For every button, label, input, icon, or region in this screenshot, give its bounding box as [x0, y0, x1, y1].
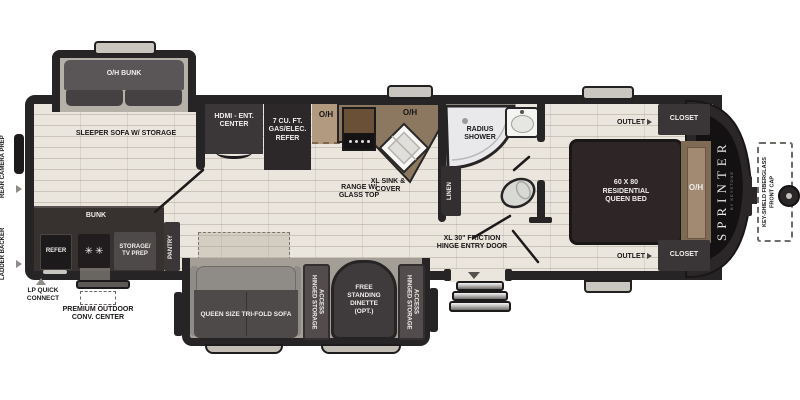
radius-shower-label: RADIUS SHOWER: [452, 126, 508, 143]
outlet-arrow-icon: [647, 253, 652, 259]
bunk-sofa-seat: [66, 90, 123, 106]
slide-travel-dashed-zone: [198, 232, 290, 260]
brand-sub-label: BY KEYSTONE: [729, 168, 737, 212]
closet-top: CLOSET: [658, 104, 710, 135]
ladder-backer-arrow: [16, 260, 22, 268]
pantry: PANTRY: [164, 222, 180, 271]
outlet-arrow-icon: [647, 119, 652, 125]
hinged-storage-right: HINGED STORAGE ACCESS: [398, 264, 425, 340]
range: [342, 107, 376, 151]
entry-step: [456, 281, 504, 291]
storage-tv-prep-box: STORAGE/ TV PREP: [114, 232, 156, 270]
entry-wall-cap: [444, 269, 451, 281]
entry-step: [449, 301, 511, 312]
roof-vent: [94, 41, 156, 55]
oh-bunk-label: O/H BUNK: [64, 70, 184, 78]
sleeper-sofa-label: SLEEPER SOFA W/ STORAGE: [52, 130, 200, 138]
tv-arc: [216, 146, 252, 159]
bath-sink-basin: [511, 115, 534, 133]
closet-bottom-label: CLOSET: [670, 251, 698, 259]
gas-elec-refer-label: 7 CU. FT. GAS/ELEC. REFER: [267, 118, 308, 143]
hitch-coupler: [778, 185, 800, 207]
linen-cabinet: LINEN: [441, 166, 461, 216]
bath-wall-tee: [529, 217, 552, 223]
rear-camera-prep-label: REAR CAMERA PREP: [0, 133, 14, 201]
sink-label: XL SINK & COVER: [368, 178, 408, 195]
stove-burner-icon: ✳: [95, 246, 103, 257]
dinette-label: FREE STANDING DINETTE (OPT.): [342, 284, 386, 315]
slideout-skirt: [321, 344, 401, 354]
bath-wall-right-bottom: [537, 180, 545, 220]
stove-burner-icon: ✳: [85, 246, 93, 257]
underbody-step: [584, 280, 632, 293]
lp-quick-connect-arrow: [36, 278, 46, 285]
closet-bottom: CLOSET: [658, 240, 710, 271]
bed-overhead-label: O/H: [681, 183, 711, 193]
bed-headboard: O/H: [681, 141, 711, 243]
entry-door-label: XL 30" FRICTION HINGE ENTRY DOOR: [434, 235, 510, 252]
faucet-icon: [520, 110, 524, 114]
slideout-skirt: [205, 344, 283, 354]
hdmi-ent-center-label: HDMI - ENT. CENTER: [209, 113, 259, 130]
refer-vent-bar: [43, 270, 67, 274]
roof-vent: [387, 85, 433, 99]
under-bunk-refer: REFER: [40, 234, 72, 270]
hinged-storage-right-label: HINGED STORAGE ACCESS: [404, 269, 418, 335]
entry-wall-cap: [505, 269, 512, 281]
floorplan-canvas: BUNK REFER ✳ ✳ STORAGE/ TV PREP PANTRY O…: [0, 0, 800, 400]
free-standing-dinette: FREE STANDING DINETTE (OPT.): [331, 260, 397, 340]
rear-window: [14, 134, 24, 174]
bath-sink: [505, 107, 539, 138]
refer-label: REFER: [46, 248, 66, 255]
lp-quick-connect-label: LP QUICK CONNECT: [20, 287, 66, 303]
entry-step: [452, 291, 508, 301]
ladder-backer-label: LADDER BACKER: [0, 216, 12, 292]
overhead-right-label: O/H: [395, 108, 425, 118]
linen-label: LINEN: [447, 182, 454, 200]
premium-outdoor-label: PREMIUM OUTDOOR CONV. CENTER: [56, 306, 140, 323]
tri-fold-sofa-back: [196, 266, 296, 292]
rear-camera-arrow: [16, 185, 22, 193]
bunk-label: BUNK: [56, 212, 136, 220]
overhead-cabinet-left: O/H: [312, 104, 340, 144]
range-burner-panel: [344, 133, 374, 149]
gas-elec-refer: 7 CU. FT. GAS/ELEC. REFER: [264, 104, 311, 170]
slideout-side-window: [174, 292, 183, 336]
outdoor-stove: ✳ ✳: [78, 234, 110, 268]
slideout-side-window: [429, 288, 438, 332]
storage-tv-prep-label: STORAGE/ TV PREP: [117, 244, 153, 258]
queen-bed: 60 X 80 RESIDENTIAL QUEEN BED: [569, 139, 683, 245]
outdoor-center-hatch: [76, 280, 130, 289]
entry-door-marker: [468, 272, 480, 279]
bath-wall-right-top: [537, 104, 545, 142]
hitch-pin: [786, 193, 792, 199]
outlet-bottom-label: OUTLET: [617, 253, 645, 260]
headboard-cabinet: [687, 147, 706, 239]
outlet-top-label: OUTLET: [617, 119, 645, 126]
overhead-left-label: O/H: [312, 110, 340, 120]
queen-bed-label: 60 X 80 RESIDENTIAL QUEEN BED: [591, 179, 661, 204]
pantry-label: PANTRY: [168, 235, 175, 259]
hinged-storage-left: HINGED STORAGE ACCESS: [303, 264, 330, 340]
hinged-storage-left-label: HINGED STORAGE ACCESS: [309, 269, 323, 335]
closet-top-label: CLOSET: [670, 115, 698, 123]
bunk-sofa-seat: [125, 90, 182, 106]
outlet-top: OUTLET: [596, 117, 652, 127]
tri-fold-sofa-label: QUEEN SIZE TRI-FOLD SOFA: [192, 311, 300, 319]
outdoor-center-dashed-zone: [80, 291, 116, 305]
roof-vent: [582, 86, 634, 100]
outlet-bottom: OUTLET: [596, 251, 652, 261]
